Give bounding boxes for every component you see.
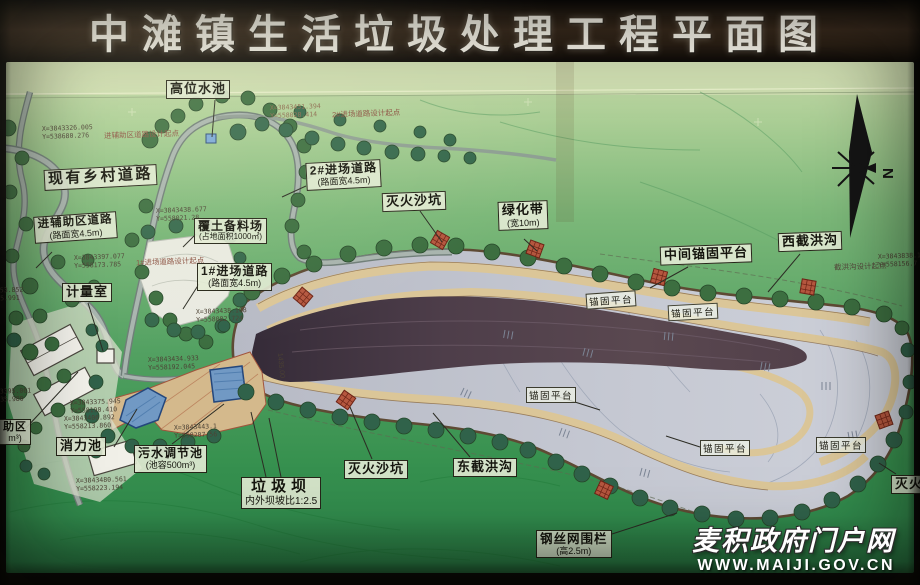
label-garbage-dam: 垃圾坝内外坝坡比1:2.5	[241, 477, 321, 509]
page-title: 中滩镇生活垃圾处理工程平面图	[89, 2, 831, 60]
label-fire-sand-pit-top: 灭火沙坑	[382, 191, 447, 212]
label-fire-sand-pit-bottom: 灭火沙坑	[344, 460, 408, 479]
label-soil-stock-yard: 覆土备料场(占地面积1000㎡)	[194, 218, 267, 244]
platform-tag: 锚固平台	[816, 437, 866, 453]
label-metering-room: 计量室	[62, 283, 112, 302]
photo-frame: 中滩镇生活垃圾处理工程平面图	[0, 0, 920, 585]
label-entry-road-2: 2#进场道路(路面宽4.5m)	[305, 159, 382, 190]
label-entry-road-1: 1#进场道路(路面宽4.5m)	[197, 263, 272, 291]
coord-annotation: X=3843434.933Y=558192.045	[148, 354, 199, 372]
platform-tag: 锚固平台	[700, 440, 750, 456]
label-fire-sand-pit-right: 灭火沙坑	[891, 475, 920, 494]
high-water-tank-shape	[206, 134, 216, 143]
coord-annotation: X=3843326.005Y=538680.276	[42, 123, 93, 141]
label-sewage-pool: 污水调节池(池容500m³)	[134, 445, 207, 473]
platform-tag: 锚固平台	[668, 303, 719, 322]
coord-annotation: X=3843480.561Y=558223.194	[76, 475, 127, 493]
compass-n-label: N	[879, 168, 896, 179]
title-banner: 中滩镇生活垃圾处理工程平面图	[0, 0, 920, 62]
coord-annotation: 53.8525.991	[0, 286, 24, 303]
platform-tag: 锚固平台	[526, 387, 576, 403]
coord-annotation: X=3843397.077Y=558173.785	[74, 252, 125, 270]
label-west-flood-ditch: 西截洪沟	[778, 231, 843, 252]
label-high-water-tank: 高位水池	[166, 80, 230, 99]
coord-annotation: X=3843443.1Y=558207.56	[174, 422, 218, 440]
label-aux-zone-cut: 助区m³)	[0, 419, 31, 445]
label-middle-anchor-platform: 中间锚固平台	[660, 243, 753, 265]
coord-annotation: X=3843838.1Y=558156.7	[878, 251, 920, 269]
watermark: 麦积政府门户网 WWW.MAIJI.GOV.CN	[655, 528, 895, 574]
coord-annotation: X=3843451.394Y=558028.414	[270, 102, 321, 120]
label-stilling-pool: 消力池	[56, 437, 106, 456]
label-green-belt: 绿化带(宽10m)	[498, 200, 549, 230]
label-wire-fence: 钢丝网围栏(高2.5m)	[536, 530, 612, 558]
label-east-flood-ditch: 东截洪沟	[453, 458, 517, 477]
coord-annotation: 3395.06135.980	[0, 386, 32, 403]
site-plan-drawing: N	[0, 0, 920, 585]
coord-annotation: X=3843406.892Y=558213.860	[64, 413, 115, 431]
watermark-site-name: 麦积政府门户网	[655, 528, 895, 555]
coord-annotation: X=3843438.108Y=558082.724	[196, 306, 247, 324]
watermark-url: WWW.MAIJI.GOV.CN	[655, 558, 895, 574]
label-aux-area-road: 进辅助区道路(路面宽4.5m)	[33, 211, 118, 244]
